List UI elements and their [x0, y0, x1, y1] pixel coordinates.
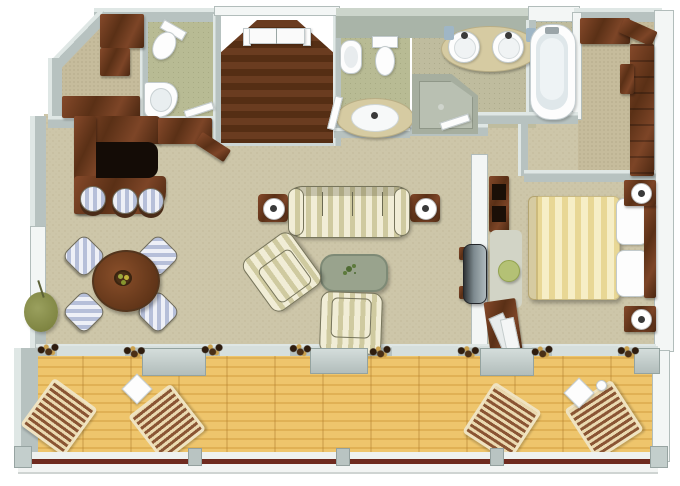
shower-drain: [438, 104, 444, 110]
nightstand-top-lamp-dot: [638, 190, 645, 197]
curtain-bunch-2: [121, 343, 146, 361]
curtain-bunch-1: [35, 341, 61, 359]
bathtub-basin-inner: [540, 38, 564, 100]
curtain-bunch-4: [287, 341, 313, 359]
balcony-round-item: [596, 380, 607, 391]
potted-plant: [24, 292, 58, 332]
curtain-bunch-3: [199, 341, 224, 359]
suite-floor-plan: [0, 0, 680, 486]
railing-post-3: [490, 448, 504, 466]
entry-double-door: [249, 28, 305, 44]
balcony-door-opening-5: [392, 346, 458, 356]
railing-post-2: [336, 448, 350, 466]
bath-sink-left-basin: [454, 37, 476, 59]
coffee-table-plant: [346, 266, 352, 272]
closet-wardrobe-top: [100, 14, 144, 48]
sofa-seam-1: [322, 192, 323, 216]
dressing-wardrobe-block: [620, 64, 634, 94]
dining-centerpiece-fruit: [118, 274, 123, 279]
table-lamp-left-dot: [270, 205, 277, 212]
threshold-ramp-1: [142, 348, 206, 376]
bed-foot-fold: [528, 196, 538, 300]
table-lamp-right-dot: [422, 205, 429, 212]
bath-top-wall-edge: [336, 8, 534, 16]
railing-post-left-end: [14, 446, 32, 468]
curtain-bunch-7: [529, 343, 555, 361]
railing-post-1: [188, 448, 202, 466]
bathtub-faucet: [545, 27, 559, 34]
closet-dresser: [62, 96, 140, 118]
bar-stool-1: [80, 186, 106, 212]
corridor-wall: [518, 124, 528, 176]
foyer-left-wall: [213, 14, 221, 146]
railing-post-right-end: [650, 446, 668, 468]
powder-sink-basin: [150, 88, 172, 112]
right-outer-wall: [654, 10, 674, 352]
armchair-bottom-seat: [330, 297, 371, 338]
coffee-table: [320, 254, 388, 292]
bath-glass-left: [444, 26, 454, 40]
bar-stool-3: [138, 188, 164, 214]
bedroom-ottoman: [498, 260, 520, 282]
bath-sink-right-basin: [498, 37, 520, 59]
left-wall-closet: [48, 58, 62, 120]
bar-stool-2: [112, 188, 138, 214]
bed-headboard: [644, 204, 656, 298]
bath-sink-right-faucet: [505, 32, 512, 39]
bed-duvet: [528, 196, 620, 300]
wc-vanity-faucet: [371, 112, 378, 119]
shelf-cubby-2: [492, 206, 506, 222]
wc-toilet-bowl: [375, 46, 395, 76]
curtain-bunch-8: [615, 343, 640, 361]
curtain-bunch-5: [367, 343, 392, 361]
balcony-door-opening-3: [220, 346, 290, 356]
railing-shadow-line: [18, 472, 658, 474]
bath-sink-left-faucet: [461, 32, 468, 39]
entry-door-seam: [276, 28, 277, 44]
sofa-seam-3: [382, 192, 383, 216]
balcony-door-opening-7: [552, 346, 618, 356]
nightstand-bottom-lamp-dot: [638, 316, 645, 323]
sofa-back-band: [292, 187, 406, 196]
wall-tv: [463, 244, 487, 304]
sofa-arm-right: [394, 188, 410, 236]
balcony-door-opening-1: [57, 346, 125, 356]
sofa-seam-2: [352, 192, 353, 216]
closet-wardrobe-side: [100, 48, 130, 76]
threshold-ramp-2: [310, 348, 368, 374]
sofa-arm-left: [288, 188, 304, 236]
dining-centerpiece: [114, 270, 132, 286]
shelf-cubby-1: [492, 184, 506, 200]
bar-counter-inner: [96, 142, 158, 178]
wc-bidet-bowl: [344, 46, 358, 68]
foyer-outer-wall: [214, 6, 340, 16]
foyer-threshold-line: [220, 143, 334, 146]
threshold-ramp-3: [480, 348, 534, 376]
curtain-bunch-6: [455, 343, 480, 361]
